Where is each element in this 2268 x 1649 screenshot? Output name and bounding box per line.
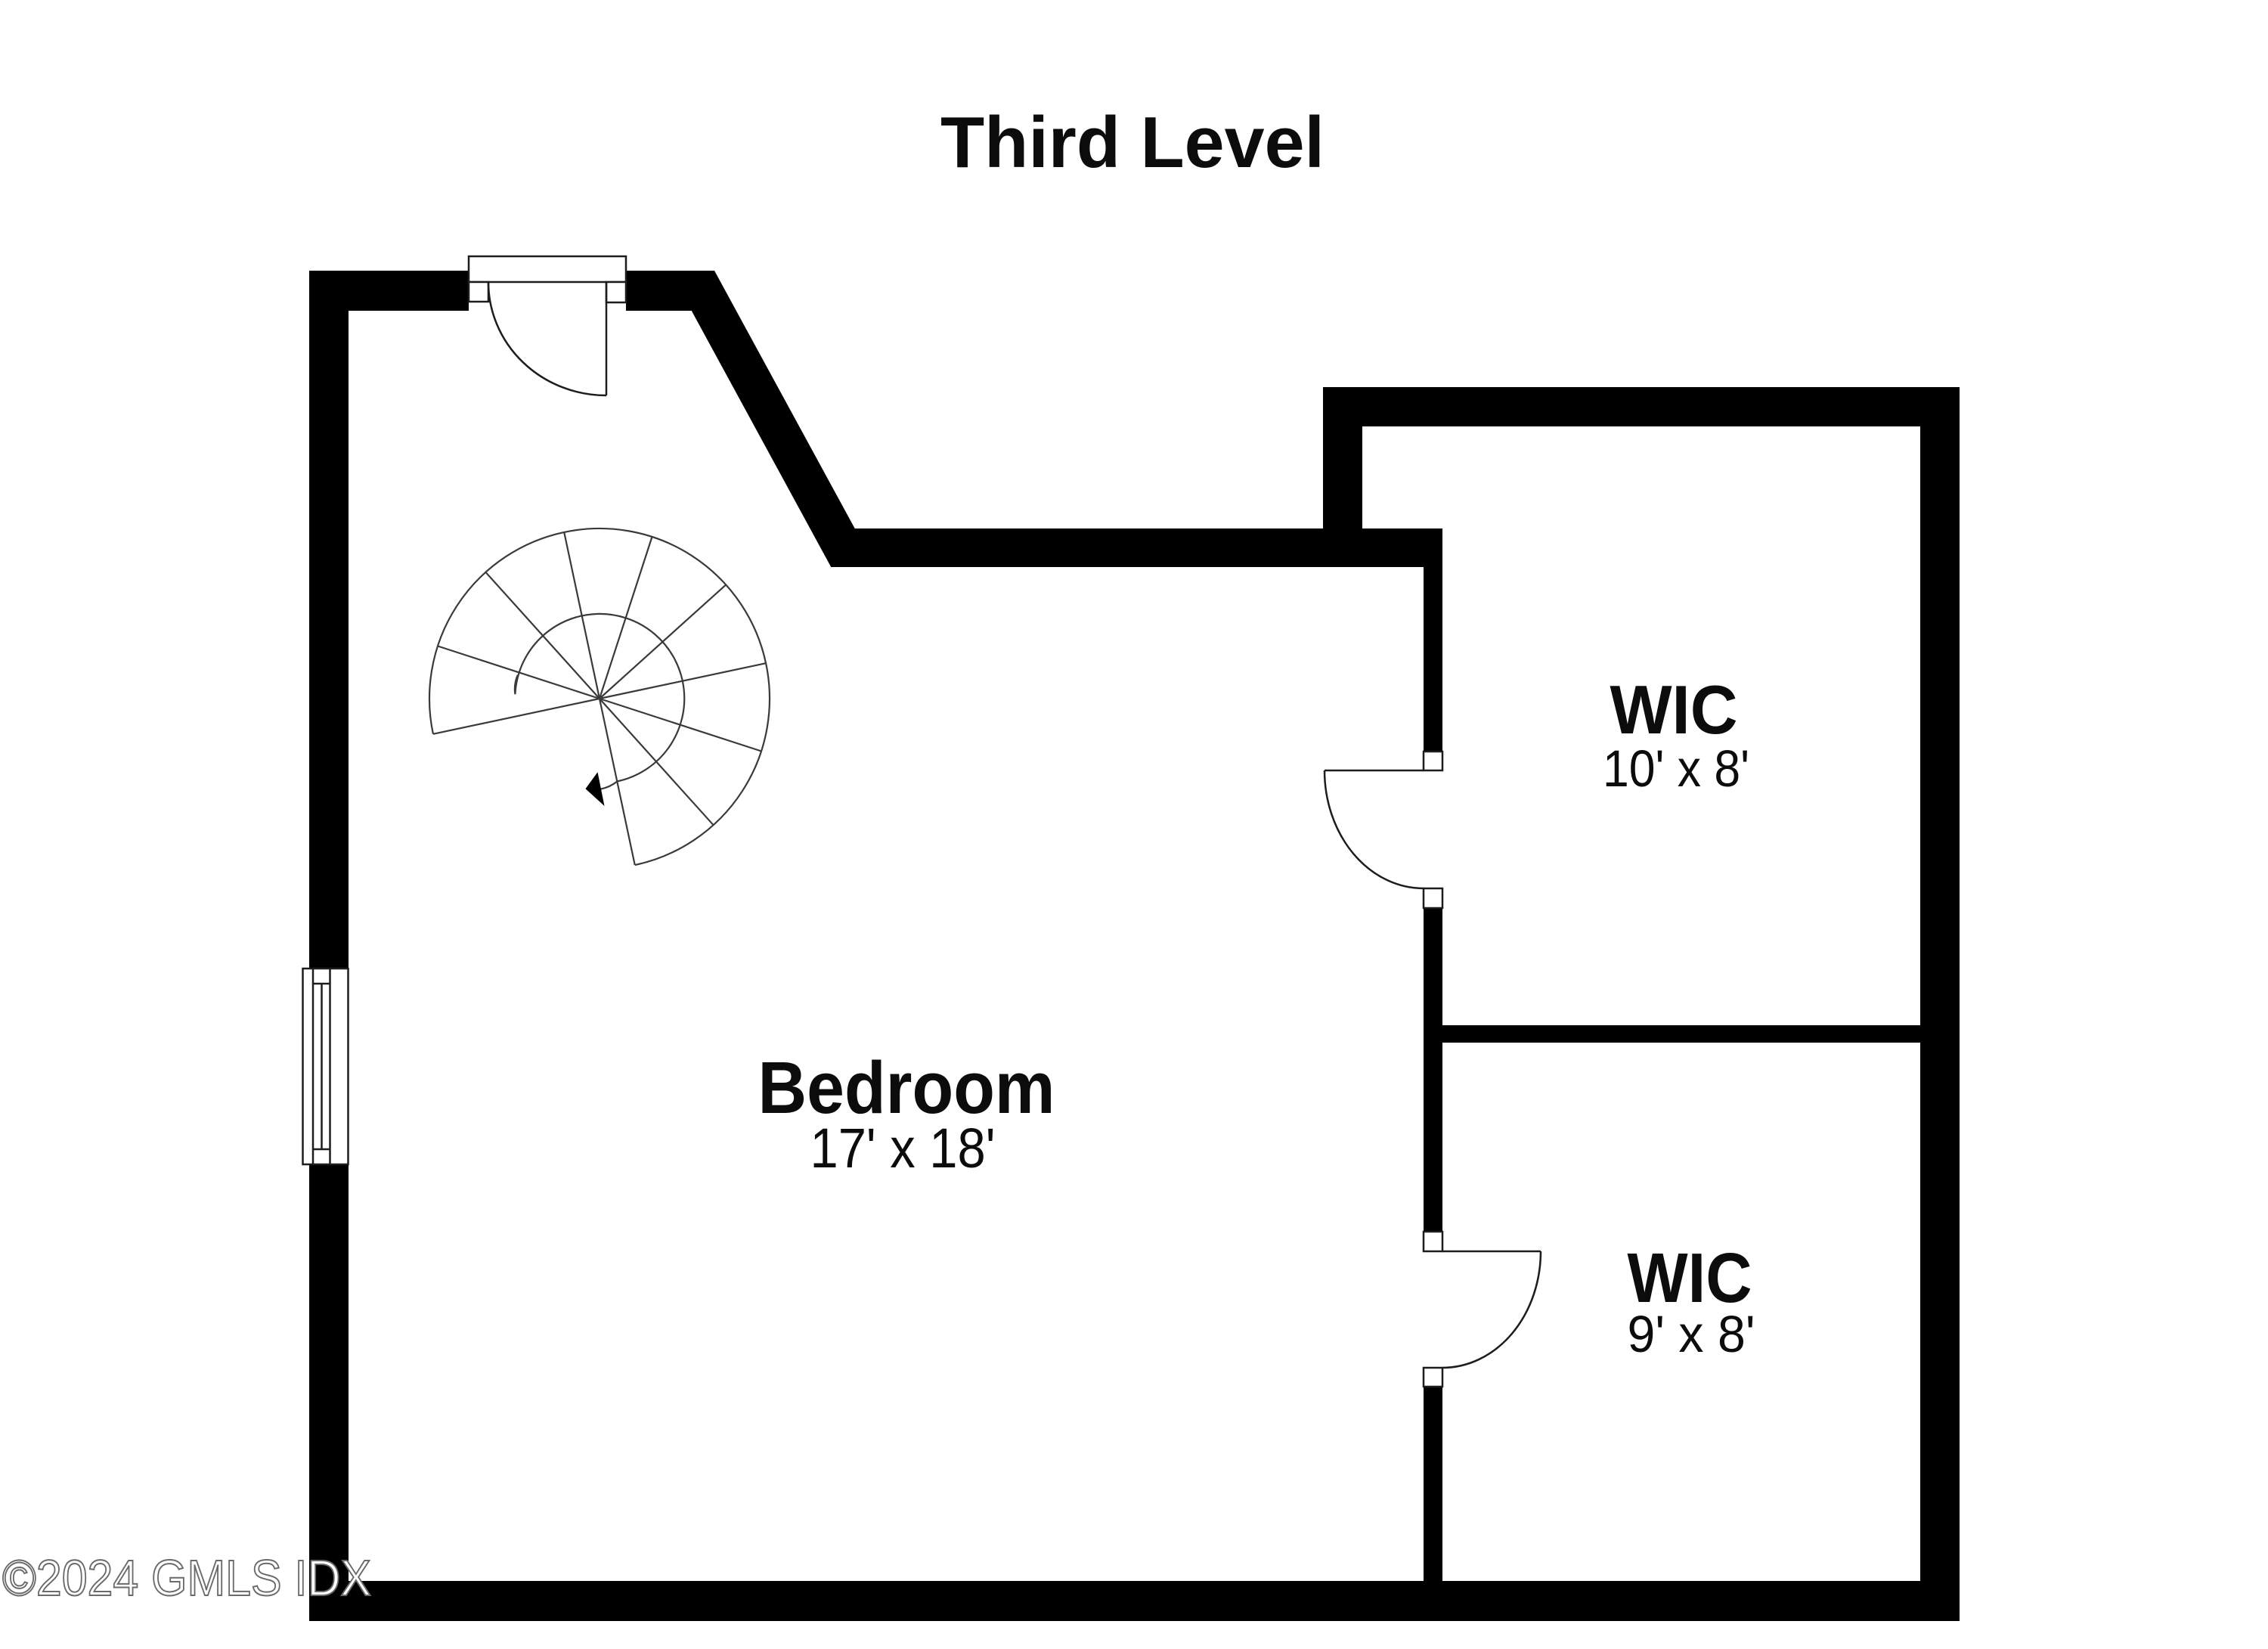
svg-text:10' x 8': 10' x 8' [1603, 739, 1749, 798]
svg-text:9' x 8': 9' x 8' [1628, 1305, 1755, 1363]
svg-text:WIC: WIC [1610, 672, 1738, 749]
svg-text:17' x 18': 17' x 18' [810, 1117, 996, 1179]
svg-text:Third Level: Third Level [940, 102, 1325, 183]
svg-text:©2024 GMLS IDX: ©2024 GMLS IDX [2, 1550, 371, 1607]
